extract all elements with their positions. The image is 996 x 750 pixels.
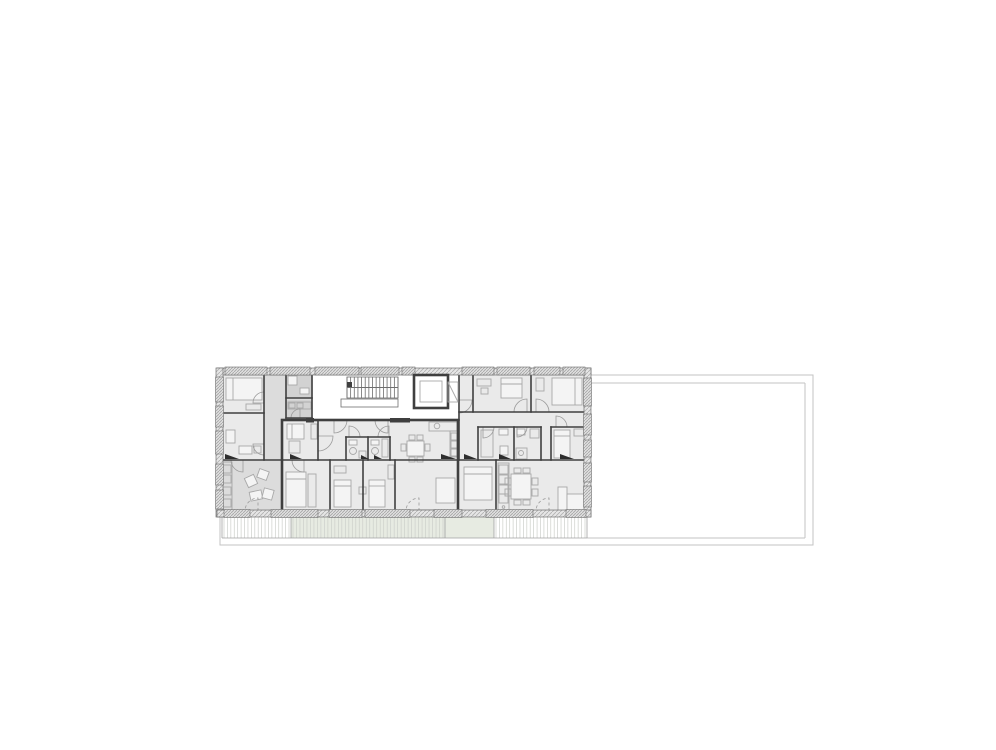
- window-sill: [216, 406, 224, 427]
- balcony-decking-1: [224, 517, 289, 538]
- window-sill: [225, 367, 267, 375]
- window-sill: [365, 510, 410, 518]
- storage-washer: [288, 376, 297, 385]
- bed-c: [369, 480, 385, 507]
- window-sill: [216, 464, 224, 485]
- bed-r1: [501, 378, 522, 398]
- window-sill: [216, 431, 224, 454]
- window-sill: [270, 367, 310, 375]
- window-sill: [329, 510, 362, 518]
- window-sill: [563, 367, 585, 375]
- bath-r1-sink: [499, 429, 508, 435]
- armchair-3: [249, 490, 263, 501]
- window-sill: [486, 510, 533, 518]
- window-sill: [216, 490, 224, 509]
- balcony-green-panel-2: [445, 517, 494, 538]
- window-sill: [534, 367, 560, 375]
- balcony-decking-3: [496, 517, 585, 538]
- wall-chunk-2: [306, 418, 314, 423]
- floor-plan-drawing: [0, 0, 996, 750]
- window-sill: [224, 510, 250, 518]
- bath-b-sink: [371, 440, 379, 445]
- window-sill: [434, 510, 462, 518]
- floor-plan-page: [0, 0, 996, 750]
- dining-table-right: [511, 474, 531, 499]
- sofa-right-back: [558, 487, 567, 511]
- bed-small-room: [287, 424, 304, 439]
- bath-r1-toilet: [500, 446, 508, 455]
- bed-nw: [226, 378, 262, 400]
- window-sill: [584, 378, 592, 406]
- window-sill: [361, 367, 399, 375]
- window-sill: [216, 377, 224, 402]
- wall-chunk-1: [390, 418, 410, 423]
- window-sill: [584, 463, 592, 482]
- sofa-right-seat: [567, 494, 586, 511]
- storage-sink: [300, 388, 309, 394]
- window-sill: [566, 510, 586, 518]
- window-sill: [584, 414, 592, 435]
- window-sill: [497, 367, 530, 375]
- bed-r2: [552, 378, 582, 405]
- study-sofa: [226, 430, 235, 443]
- bed-b: [334, 480, 351, 507]
- hall-lower-fill: [264, 421, 282, 460]
- window-sill: [584, 486, 592, 507]
- study-table: [239, 446, 252, 454]
- bath-a-sink: [349, 440, 357, 445]
- bed-a: [286, 472, 306, 507]
- bed-r3: [554, 430, 570, 458]
- plan-layers: [216, 367, 814, 545]
- window-sill: [462, 367, 494, 375]
- window-sill: [584, 440, 592, 457]
- dining-table-center: [407, 441, 424, 456]
- armchair-4: [262, 488, 274, 500]
- bed-r4: [464, 467, 492, 500]
- sofa-center: [436, 478, 455, 503]
- window-sill: [271, 510, 318, 518]
- window-sill: [315, 367, 359, 375]
- stair-start-marker: [347, 382, 352, 387]
